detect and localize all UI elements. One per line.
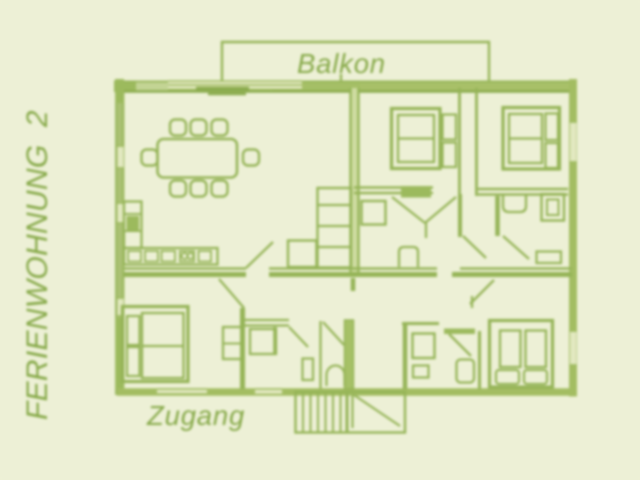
svg-text:FERIENWOHNUNG 2: FERIENWOHNUNG 2 [21,110,54,420]
svg-text:Balkon: Balkon [297,48,386,79]
svg-text:Zugang: Zugang [146,400,245,431]
